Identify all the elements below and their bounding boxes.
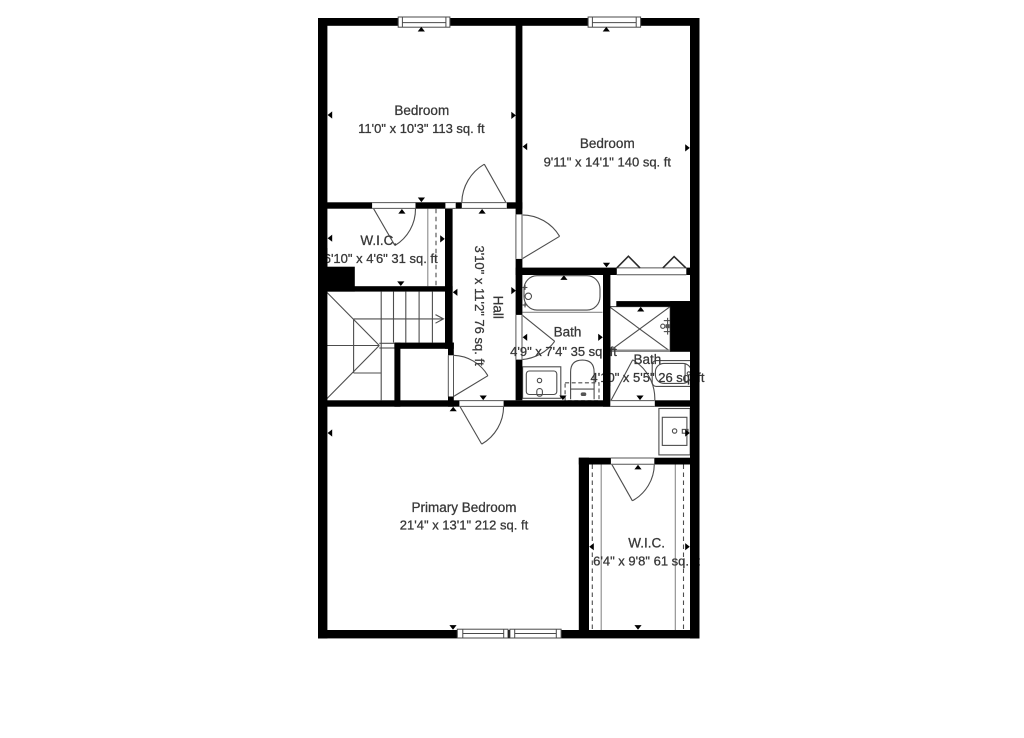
svg-text:W.I.C.: W.I.C. [360, 233, 397, 248]
svg-text:9'11" x 14'1" 140 sq. ft: 9'11" x 14'1" 140 sq. ft [544, 155, 672, 170]
svg-text:Bath: Bath [634, 352, 662, 367]
svg-text:3'10" x 11'2" 76 sq. ft: 3'10" x 11'2" 76 sq. ft [472, 245, 487, 366]
svg-text:W.I.C.: W.I.C. [628, 536, 665, 551]
svg-text:21'4" x 13'1" 212 sq. ft: 21'4" x 13'1" 212 sq. ft [400, 518, 529, 533]
svg-text:Bedroom: Bedroom [394, 103, 449, 118]
svg-text:Hall: Hall [491, 296, 506, 319]
svg-text:Bath: Bath [554, 325, 582, 340]
svg-text:4'9" x 7'4" 35 sq. ft: 4'9" x 7'4" 35 sq. ft [510, 344, 617, 359]
svg-text:11'0" x 10'3" 113 sq. ft: 11'0" x 10'3" 113 sq. ft [358, 121, 485, 136]
svg-text:Primary Bedroom: Primary Bedroom [411, 500, 516, 515]
svg-text:6'10" x 4'6" 31 sq. ft: 6'10" x 4'6" 31 sq. ft [324, 251, 438, 266]
svg-text:Bedroom: Bedroom [580, 136, 635, 151]
svg-text:6'4" x 9'8" 61 sq. ft: 6'4" x 9'8" 61 sq. ft [593, 554, 700, 569]
